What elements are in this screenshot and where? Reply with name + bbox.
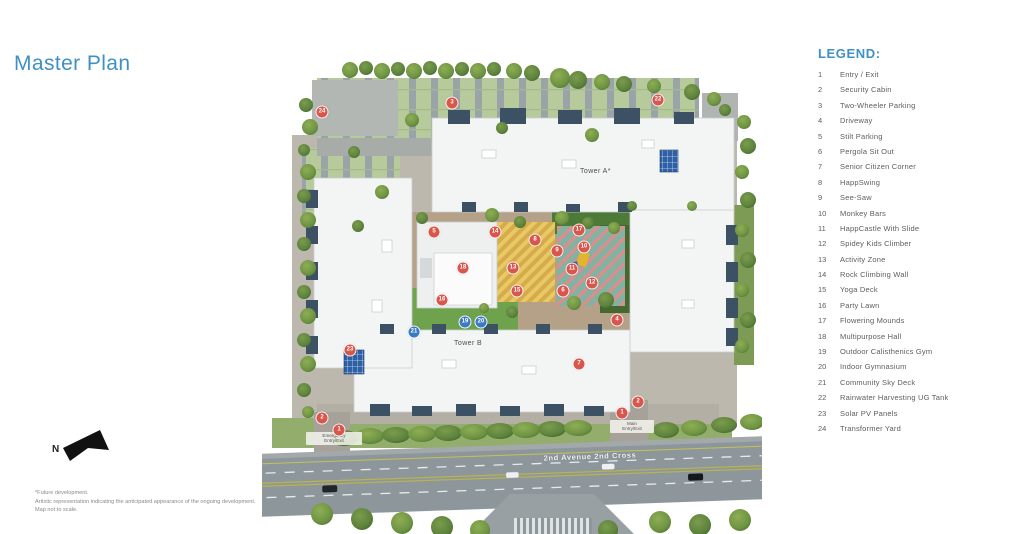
map-marker-21: 21 bbox=[409, 327, 420, 338]
legend-item-label: Rock Climbing Wall bbox=[840, 270, 908, 279]
legend-item-label: Community Sky Deck bbox=[840, 378, 915, 387]
legend-item-number: 9 bbox=[818, 193, 840, 202]
legend-item-8: 8HappSwing bbox=[818, 178, 1018, 193]
legend-item-number: 22 bbox=[818, 393, 840, 402]
legend-item-2: 2Security Cabin bbox=[818, 85, 1018, 100]
legend-item-label: Rainwater Harvesting UG Tank bbox=[840, 393, 948, 402]
map-marker-23: 23 bbox=[345, 345, 356, 356]
map-marker-9: 9 bbox=[552, 246, 563, 257]
legend-item-label: Party Lawn bbox=[840, 301, 880, 310]
map-marker-11: 11 bbox=[567, 264, 578, 275]
map-marker-10: 10 bbox=[579, 242, 590, 253]
legend-item-label: Multipurpose Hall bbox=[840, 332, 901, 341]
disclaimer-line3: Map not to scale. bbox=[35, 506, 285, 515]
page-title: Master Plan bbox=[14, 52, 130, 76]
legend-item-3: 3Two-Wheeler Parking bbox=[818, 101, 1018, 116]
north-arrow-icon bbox=[62, 428, 112, 468]
legend-item-label: Indoor Gymnasium bbox=[840, 362, 907, 371]
legend-item-number: 10 bbox=[818, 209, 840, 218]
legend-item-number: 17 bbox=[818, 316, 840, 325]
legend-item-label: Stilt Parking bbox=[840, 132, 883, 141]
legend-item-15: 15Yoga Deck bbox=[818, 285, 1018, 300]
legend-item-19: 19Outdoor Calisthenics Gym bbox=[818, 347, 1018, 362]
map-marker-22: 22 bbox=[653, 95, 664, 106]
compass: N bbox=[46, 428, 116, 482]
legend-item-number: 12 bbox=[818, 239, 840, 248]
legend-item-20: 20Indoor Gymnasium bbox=[818, 362, 1018, 377]
legend-item-number: 2 bbox=[818, 85, 840, 94]
map-marker-13: 13 bbox=[508, 263, 519, 274]
legend-item-number: 11 bbox=[818, 224, 840, 233]
legend-item-24: 24Transformer Yard bbox=[818, 424, 1018, 439]
legend-item-label: HappCastle With Slide bbox=[840, 224, 919, 233]
legend-item-label: Solar PV Panels bbox=[840, 409, 898, 418]
legend-item-number: 4 bbox=[818, 116, 840, 125]
map-marker-8: 8 bbox=[530, 235, 541, 246]
disclaimer-line2: Artistic representation indicating the a… bbox=[35, 498, 285, 507]
map-marker-12: 12 bbox=[587, 278, 598, 289]
legend-list: 1Entry / Exit2Security Cabin3Two-Wheeler… bbox=[818, 70, 1018, 439]
legend-item-label: Transformer Yard bbox=[840, 424, 901, 433]
map-marker-14: 14 bbox=[490, 227, 501, 238]
legend-item-17: 17Flowering Mounds bbox=[818, 316, 1018, 331]
map-marker-19: 19 bbox=[460, 317, 471, 328]
legend-panel: LEGEND: 1Entry / Exit2Security Cabin3Two… bbox=[818, 46, 1018, 439]
legend-item-number: 3 bbox=[818, 101, 840, 110]
legend-item-1: 1Entry / Exit bbox=[818, 70, 1018, 85]
legend-item-number: 23 bbox=[818, 409, 840, 418]
map-marker-2: 2 bbox=[633, 397, 644, 408]
legend-item-label: Two-Wheeler Parking bbox=[840, 101, 916, 110]
compass-north-label: N bbox=[52, 444, 59, 455]
legend-item-number: 6 bbox=[818, 147, 840, 156]
legend-item-number: 19 bbox=[818, 347, 840, 356]
legend-item-13: 13Activity Zone bbox=[818, 255, 1018, 270]
map-marker-24: 24 bbox=[317, 107, 328, 118]
legend-item-12: 12Spidey Kids Climber bbox=[818, 239, 1018, 254]
map-marker-15: 15 bbox=[512, 286, 523, 297]
map-marker-17: 17 bbox=[574, 225, 585, 236]
legend-title: LEGEND: bbox=[818, 46, 1018, 61]
map-marker-1: 1 bbox=[617, 408, 628, 419]
map-marker-1: 1 bbox=[334, 425, 345, 436]
legend-item-label: Entry / Exit bbox=[840, 70, 879, 79]
legend-item-16: 16Party Lawn bbox=[818, 301, 1018, 316]
map-marker-18: 18 bbox=[458, 263, 469, 274]
legend-item-5: 5Stilt Parking bbox=[818, 132, 1018, 147]
map-marker-4: 4 bbox=[612, 315, 623, 326]
map-marker-2: 2 bbox=[317, 413, 328, 424]
legend-item-label: Security Cabin bbox=[840, 85, 892, 94]
legend-item-label: Senior Citizen Corner bbox=[840, 162, 916, 171]
legend-item-23: 23Solar PV Panels bbox=[818, 409, 1018, 424]
legend-item-number: 1 bbox=[818, 70, 840, 79]
legend-item-label: Monkey Bars bbox=[840, 209, 886, 218]
legend-item-10: 10Monkey Bars bbox=[818, 209, 1018, 224]
legend-item-7: 7Senior Citizen Corner bbox=[818, 162, 1018, 177]
amenity-markers: 2432251417891011121318151664723212119202… bbox=[262, 0, 762, 534]
legend-item-22: 22Rainwater Harvesting UG Tank bbox=[818, 393, 1018, 408]
map-marker-20: 20 bbox=[476, 317, 487, 328]
map-marker-5: 5 bbox=[429, 227, 440, 238]
legend-item-number: 20 bbox=[818, 362, 840, 371]
legend-item-21: 21Community Sky Deck bbox=[818, 378, 1018, 393]
legend-item-4: 4Driveway bbox=[818, 116, 1018, 131]
map-marker-6: 6 bbox=[558, 286, 569, 297]
site-plan: Tower A* Tower B Emergency Entry/Exit Ma… bbox=[262, 0, 762, 534]
legend-item-number: 8 bbox=[818, 178, 840, 187]
legend-item-number: 14 bbox=[818, 270, 840, 279]
legend-item-9: 9See-Saw bbox=[818, 193, 1018, 208]
legend-item-number: 13 bbox=[818, 255, 840, 264]
map-marker-7: 7 bbox=[574, 359, 585, 370]
legend-item-number: 7 bbox=[818, 162, 840, 171]
legend-item-label: Outdoor Calisthenics Gym bbox=[840, 347, 932, 356]
disclaimer-line1: *Future development. bbox=[35, 489, 285, 498]
legend-item-label: Yoga Deck bbox=[840, 285, 878, 294]
legend-item-number: 24 bbox=[818, 424, 840, 433]
legend-item-number: 16 bbox=[818, 301, 840, 310]
legend-item-14: 14Rock Climbing Wall bbox=[818, 270, 1018, 285]
legend-item-11: 11HappCastle With Slide bbox=[818, 224, 1018, 239]
legend-item-number: 5 bbox=[818, 132, 840, 141]
legend-item-label: Pergola Sit Out bbox=[840, 147, 894, 156]
map-marker-3: 3 bbox=[447, 98, 458, 109]
legend-item-number: 21 bbox=[818, 378, 840, 387]
legend-item-18: 18Multipurpose Hall bbox=[818, 332, 1018, 347]
legend-item-label: Activity Zone bbox=[840, 255, 886, 264]
legend-item-label: HappSwing bbox=[840, 178, 880, 187]
legend-item-number: 18 bbox=[818, 332, 840, 341]
legend-item-label: Flowering Mounds bbox=[840, 316, 904, 325]
legend-item-6: 6Pergola Sit Out bbox=[818, 147, 1018, 162]
disclaimer-text: *Future development. Artistic representa… bbox=[35, 489, 285, 515]
legend-item-number: 15 bbox=[818, 285, 840, 294]
legend-item-label: Spidey Kids Climber bbox=[840, 239, 911, 248]
map-marker-16: 16 bbox=[437, 295, 448, 306]
legend-item-label: Driveway bbox=[840, 116, 872, 125]
legend-item-label: See-Saw bbox=[840, 193, 872, 202]
